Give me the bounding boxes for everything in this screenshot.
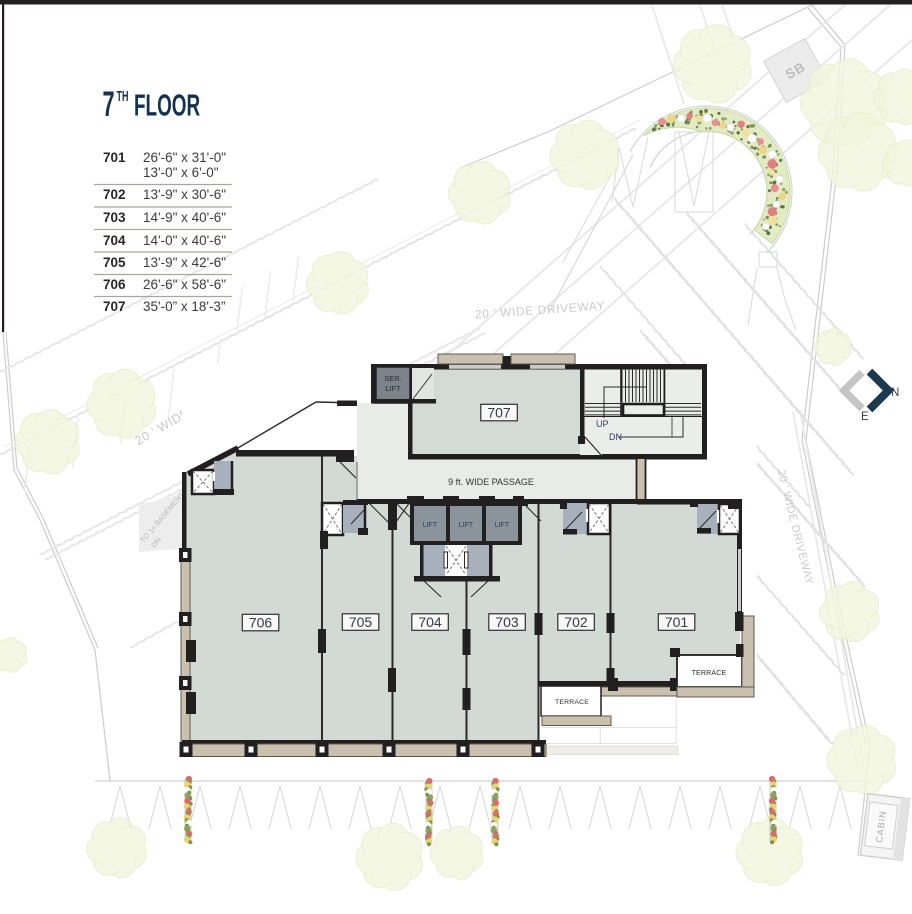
svg-text:707: 707: [487, 405, 511, 421]
svg-text:LIFT: LIFT: [459, 522, 474, 529]
svg-text:13'-9" x 30'-6": 13'-9" x 30'-6": [143, 187, 226, 202]
svg-text:35'-0” x 18'-3”: 35'-0” x 18'-3”: [143, 299, 225, 314]
svg-text:26'-6" x 31'-0": 26'-6" x 31'-0": [143, 150, 226, 165]
svg-text:DN: DN: [609, 432, 622, 442]
svg-text:TERRACE: TERRACE: [692, 670, 727, 677]
svg-text:13'-9" x 42'-6": 13'-9" x 42'-6": [143, 255, 226, 270]
svg-text:701: 701: [103, 150, 126, 165]
svg-text:E: E: [861, 411, 869, 423]
svg-text:LIFT: LIFT: [423, 522, 438, 529]
svg-text:FLOOR: FLOOR: [134, 89, 200, 123]
svg-text:9 ft. WIDE PASSAGE: 9 ft. WIDE PASSAGE: [448, 477, 534, 487]
svg-text:701: 701: [665, 614, 689, 630]
svg-text:705: 705: [103, 255, 126, 270]
svg-text:703: 703: [103, 210, 126, 225]
svg-text:705: 705: [349, 614, 373, 630]
svg-text:706: 706: [249, 615, 273, 631]
svg-text:703: 703: [495, 614, 519, 630]
svg-text:704: 704: [103, 233, 126, 248]
svg-text:20 ’ WIDE DRIVEWAY: 20 ’ WIDE DRIVEWAY: [474, 298, 605, 321]
svg-text:LIFT: LIFT: [495, 522, 510, 529]
svg-text:26'-6" x 58'-6": 26'-6" x 58'-6": [143, 277, 226, 292]
svg-text:TH: TH: [117, 88, 129, 105]
svg-text:702: 702: [564, 614, 588, 630]
svg-text:707: 707: [103, 299, 126, 314]
svg-text:N: N: [891, 387, 899, 399]
svg-text:14'-9" x 40'-6": 14'-9" x 40'-6": [143, 210, 226, 225]
svg-text:704: 704: [418, 614, 442, 630]
svg-text:14'-0" x 40'-6": 14'-0" x 40'-6": [143, 233, 226, 248]
svg-text:LIFT: LIFT: [385, 384, 401, 393]
svg-text:13'-0" x 6'-0": 13'-0" x 6'-0": [143, 165, 219, 180]
svg-text:706: 706: [103, 277, 126, 292]
svg-text:SER.: SER.: [384, 374, 402, 383]
svg-text:20 ’ WIDE DRIVEWAY: 20 ’ WIDE DRIVEWAY: [775, 468, 815, 586]
svg-text:7: 7: [103, 86, 115, 124]
svg-text:TERRACE: TERRACE: [555, 699, 589, 706]
svg-text:UP: UP: [596, 419, 609, 429]
svg-text:702: 702: [103, 187, 126, 202]
